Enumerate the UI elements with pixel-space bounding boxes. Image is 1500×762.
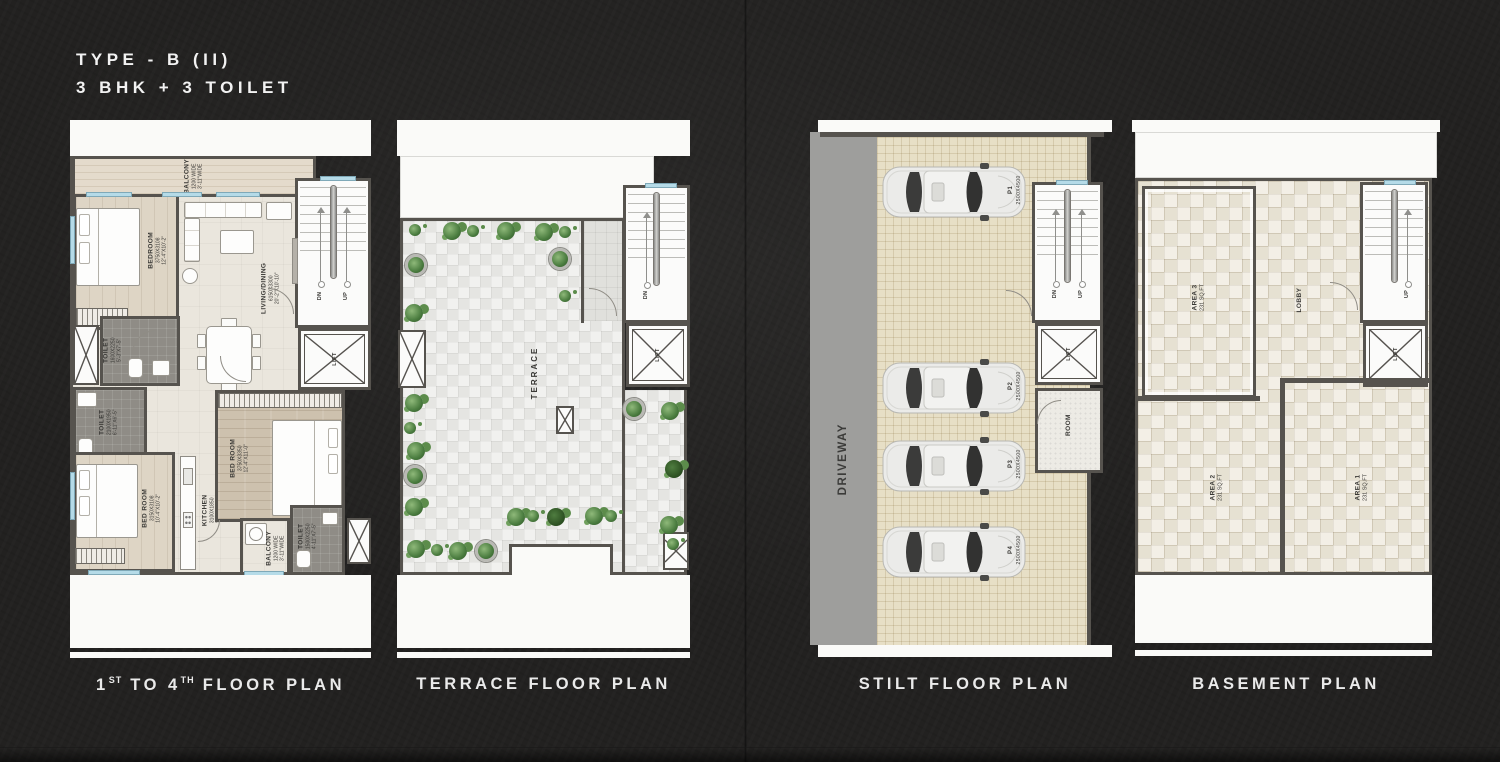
lift-label: LIFT — [1066, 347, 1072, 361]
washbasin — [152, 360, 170, 376]
wardrobe — [75, 548, 125, 564]
sofa-return — [184, 218, 200, 262]
window-marker — [1056, 180, 1088, 185]
stair-dn-label: DN — [1052, 287, 1058, 301]
window-marker — [86, 192, 132, 197]
stair-arrow-up — [1081, 211, 1082, 281]
pillow — [79, 242, 90, 264]
lift-shaft: LIFT — [1363, 323, 1428, 385]
stair-arrow-dn — [646, 214, 647, 282]
stair-rail — [1065, 190, 1070, 282]
stair-rail — [1392, 190, 1397, 282]
wardrobe — [218, 393, 342, 408]
car-icon — [880, 523, 1028, 581]
car-icon — [880, 359, 1028, 417]
top-strip — [397, 120, 690, 156]
area-3 — [1142, 186, 1256, 398]
armchair — [266, 202, 292, 220]
lift-shaft: LIFT — [1035, 323, 1103, 385]
plant-icon — [667, 538, 679, 550]
car-icon — [880, 163, 1028, 221]
page-fold-seam — [744, 0, 747, 762]
kitchen-sink — [183, 468, 193, 485]
bottom-line — [70, 652, 371, 658]
pillow — [79, 496, 90, 516]
bottom-line — [397, 652, 690, 658]
chair — [252, 334, 261, 348]
window-marker — [645, 183, 677, 188]
window-marker — [70, 216, 75, 264]
car-icon — [880, 437, 1028, 495]
stair-arrow-up — [1407, 211, 1408, 281]
floor-plan-poster: TYPE - B (II) 3 BHK + 3 TOILET BALCONY 1… — [0, 0, 1500, 762]
chair — [221, 318, 237, 327]
roof-setback — [400, 156, 654, 218]
plant-icon — [535, 223, 553, 241]
coffee-table — [220, 230, 254, 254]
duct-shaft — [398, 330, 426, 388]
pillow — [79, 470, 90, 490]
wc — [296, 550, 311, 568]
lift-shaft: LIFT — [626, 323, 690, 387]
stair-dn-label: DN — [643, 288, 649, 302]
stair-arrow-dn — [320, 209, 321, 281]
stair-rail — [331, 186, 336, 278]
stair-up-label: UP — [1404, 287, 1410, 301]
pillow — [328, 428, 338, 448]
shaft-x-icon — [75, 327, 97, 383]
plant-icon — [559, 226, 571, 238]
caption-floor-plan: 1ST TO 4TH FLOOR PLAN — [70, 675, 371, 695]
plant-icon — [407, 540, 425, 558]
wall — [1087, 473, 1091, 645]
bottom-line — [1135, 650, 1432, 656]
driveway — [810, 132, 877, 645]
washing-machine-drum — [249, 527, 263, 541]
bottom-strip — [397, 575, 690, 648]
page-bottom-edge — [0, 747, 1500, 762]
duct-shaft — [663, 532, 689, 570]
plant-icon — [404, 465, 426, 487]
wall — [1087, 137, 1091, 182]
blanket-line — [96, 465, 97, 537]
caption-stilt-plan: STILT FLOOR PLAN — [810, 675, 1120, 694]
stair-arrow-up — [346, 209, 347, 281]
panel-stilt-plan: DRIVEWAY P1 2500X4500 P2 2500X4500 P3 25… — [810, 120, 1120, 657]
tv-unit — [292, 238, 298, 284]
plant-icon — [585, 507, 603, 525]
plant-icon — [527, 510, 539, 522]
plant-icon — [547, 508, 565, 526]
chair — [197, 356, 206, 370]
plant-icon — [405, 254, 427, 276]
plant-icon — [467, 225, 479, 237]
plant-icon — [431, 544, 443, 556]
staircase: UP — [1360, 182, 1428, 323]
planter-box — [556, 406, 574, 434]
wc — [128, 358, 143, 378]
caption-terrace-plan: TERRACE FLOOR PLAN — [397, 675, 690, 694]
plant-icon — [475, 540, 497, 562]
stair-dn-label: DN — [317, 289, 323, 303]
top-strip — [70, 120, 371, 156]
panel-terrace-plan: DN LIFT TERRACE — [397, 120, 690, 661]
balcony-top — [72, 156, 316, 197]
stair-rail — [654, 193, 659, 285]
blanket-line — [314, 421, 315, 515]
top-strip — [818, 120, 1112, 132]
stair-up-label: UP — [343, 289, 349, 303]
stair-up-label: UP — [1078, 287, 1084, 301]
page-title: TYPE - B (II) 3 BHK + 3 TOILET — [76, 46, 293, 102]
room-label: ROOM — [1065, 390, 1073, 460]
plant-icon — [407, 442, 425, 460]
shaft-x-icon — [349, 520, 369, 562]
plant-icon — [449, 542, 467, 560]
wall — [820, 132, 1104, 137]
lift-label: LIFT — [655, 348, 661, 362]
plant-icon — [661, 402, 679, 420]
title-line2: 3 BHK + 3 TOILET — [76, 74, 293, 102]
plant-icon — [405, 394, 423, 412]
plant-icon — [404, 422, 416, 434]
pillow — [79, 214, 90, 236]
plant-icon — [623, 398, 645, 420]
plant-icon — [443, 222, 461, 240]
washbasin — [77, 392, 97, 407]
lift-label: LIFT — [332, 352, 338, 366]
staircase: DN UP — [1032, 182, 1103, 323]
blanket-line — [98, 209, 99, 285]
washbasin — [322, 512, 338, 525]
plant-icon — [660, 516, 678, 534]
duct-shaft — [347, 518, 371, 564]
wall — [581, 221, 584, 323]
plant-icon — [497, 222, 515, 240]
terrace-notch — [509, 544, 613, 575]
plant-icon — [559, 290, 571, 302]
bottom-strip — [70, 575, 371, 648]
bottom-strip — [1135, 575, 1432, 643]
plant-icon — [549, 248, 571, 270]
plant-icon — [605, 510, 617, 522]
pillow — [328, 454, 338, 474]
panel-basement-plan: AREA 3 231 SQ.FT LOBBY UP LIFT AREA 2 — [1132, 120, 1440, 657]
plant-icon — [507, 508, 525, 526]
duct-shaft — [73, 325, 99, 385]
window-marker — [320, 176, 356, 181]
kitchen-stove — [183, 512, 193, 528]
wall — [1280, 378, 1285, 575]
top-strip — [1132, 120, 1440, 132]
stair-arrow-dn — [1055, 211, 1056, 281]
window-marker — [1384, 180, 1416, 185]
sofa — [184, 202, 262, 218]
chair — [252, 356, 261, 370]
roof-setback — [1135, 132, 1437, 178]
title-line1: TYPE - B (II) — [76, 46, 293, 74]
staircase: DN UP — [295, 178, 371, 328]
planter-x-icon — [558, 408, 572, 432]
plant-icon — [405, 304, 423, 322]
window-marker — [70, 472, 75, 520]
wall — [1135, 396, 1260, 401]
store-room: ROOM — [1035, 388, 1103, 473]
lift-label: LIFT — [1393, 347, 1399, 361]
window-marker — [216, 192, 260, 197]
window-marker — [162, 192, 202, 197]
side-table-round — [182, 268, 198, 284]
caption-basement-plan: BASEMENT PLAN — [1132, 675, 1440, 694]
panel-floor-plan: BALCONY 1200 WIDE 3'-11"WIDE DN UP LIFT — [70, 120, 371, 661]
staircase: DN — [623, 185, 690, 323]
wall — [1363, 383, 1428, 387]
plant-icon — [409, 224, 421, 236]
bottom-strip — [818, 645, 1112, 657]
chair — [197, 334, 206, 348]
plant-icon — [405, 498, 423, 516]
lift-shaft: LIFT — [298, 328, 371, 390]
plant-icon — [665, 460, 683, 478]
shaft-x-icon — [400, 332, 424, 386]
